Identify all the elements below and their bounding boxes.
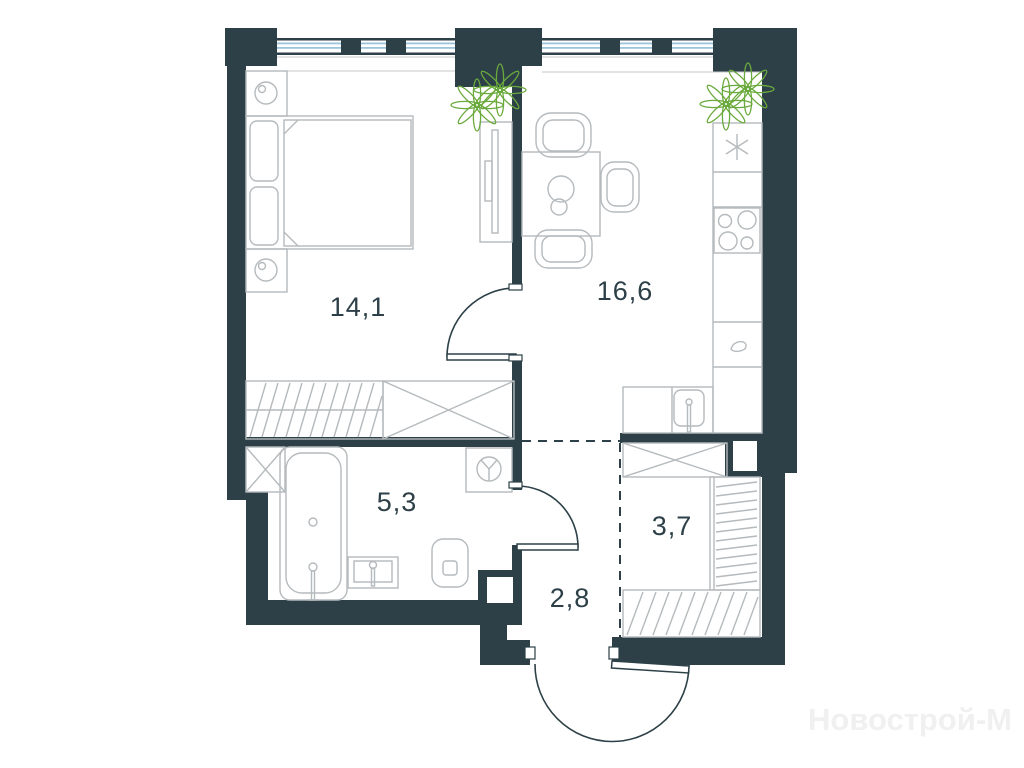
floor-plan-canvas: 14,1 16,6 5,3 3,7 2,8 Новострой-М <box>0 0 1024 768</box>
kitchen-sink-icon <box>674 390 704 426</box>
bathroom-door-swing <box>517 486 578 547</box>
kitchen-counter <box>713 123 762 433</box>
bathtub-faucet <box>312 571 315 600</box>
window-glass <box>542 47 713 49</box>
window-frame <box>542 38 713 41</box>
wall-entry-left <box>480 625 507 665</box>
entrance-door-swing <box>535 664 689 742</box>
bathtub-inner <box>286 453 341 593</box>
window-mullion <box>386 38 406 55</box>
hallway-area-label: 2,8 <box>550 583 591 613</box>
chair <box>607 169 633 206</box>
wall-bottom-wardrobe-room <box>612 637 785 665</box>
window-glass <box>277 47 455 49</box>
toilet-inner <box>443 561 457 575</box>
wall-top-right-corner <box>713 28 797 72</box>
blanket <box>284 120 411 246</box>
walls <box>225 28 797 665</box>
chair <box>542 236 585 262</box>
burner <box>719 215 732 228</box>
bedroom-door-swing <box>447 288 516 357</box>
blanket-fold <box>284 232 298 246</box>
lamp-icon <box>255 259 277 281</box>
faucet <box>688 405 691 432</box>
lamp-icon <box>259 263 266 270</box>
bathtub-faucet <box>309 563 317 571</box>
toilet <box>432 539 468 587</box>
lamp-icon <box>255 82 277 104</box>
burner <box>719 232 737 250</box>
pillow <box>250 121 278 181</box>
wardrobe-area-label: 3,7 <box>652 511 693 541</box>
floor-plan: 14,1 16,6 5,3 3,7 2,8 Новострой-М <box>0 0 1024 768</box>
window-glass <box>277 43 455 45</box>
nightstand <box>246 71 287 116</box>
pillow <box>250 187 278 245</box>
basin-faucet <box>372 568 375 586</box>
window-mullion <box>341 38 361 55</box>
watermark: Новострой-М <box>808 702 1012 737</box>
bathroom-door-leaf <box>517 544 578 550</box>
tv-bracket <box>485 161 492 201</box>
faucet <box>686 399 692 405</box>
bathroom-area-label: 5,3 <box>377 487 418 517</box>
bathroom-furniture <box>246 447 512 600</box>
window-frame <box>542 53 713 56</box>
shaft-niche <box>733 441 757 471</box>
wall-right-lower <box>762 473 785 665</box>
dining-table <box>522 152 600 236</box>
bedroom-door-leaf <box>447 354 516 360</box>
table-decor <box>548 176 574 202</box>
cabinet-handle-icon <box>731 342 746 352</box>
burner <box>741 237 753 249</box>
tv-icon <box>492 130 498 233</box>
door-jamb <box>609 647 619 659</box>
kitchen-area-label: 16,6 <box>597 276 654 306</box>
wall-right-upper <box>762 72 797 473</box>
burner <box>738 211 756 229</box>
bedroom-area-label: 14,1 <box>330 292 387 322</box>
hanger-hatch <box>716 482 757 586</box>
door-jamb <box>509 355 522 361</box>
bed <box>246 116 413 249</box>
shoe-rack-hatch <box>627 592 758 635</box>
window-frame <box>277 38 455 41</box>
duct-niche <box>487 577 513 603</box>
nightstand <box>246 249 287 292</box>
door-jamb <box>509 284 522 290</box>
wash-basin-inner <box>354 561 392 582</box>
chair <box>543 120 584 151</box>
window-glass <box>542 43 713 45</box>
bathtub <box>280 447 347 600</box>
extractor-asterisk-icon <box>726 134 748 160</box>
bathtub-drain <box>309 518 317 526</box>
window-frame <box>277 53 455 56</box>
window-mullion <box>652 38 672 55</box>
window-mullion <box>600 38 620 55</box>
wall-bedroom-kitchen-upper <box>512 87 522 290</box>
blanket-fold <box>284 120 298 134</box>
wall-center-pillar <box>455 28 542 66</box>
door-jamb <box>525 647 535 659</box>
door-jamb <box>509 482 522 488</box>
wall-top-left-corner <box>225 28 277 66</box>
wall-left-bedroom <box>227 66 246 500</box>
lamp-icon <box>259 86 266 93</box>
kitchen-furniture <box>522 113 762 433</box>
